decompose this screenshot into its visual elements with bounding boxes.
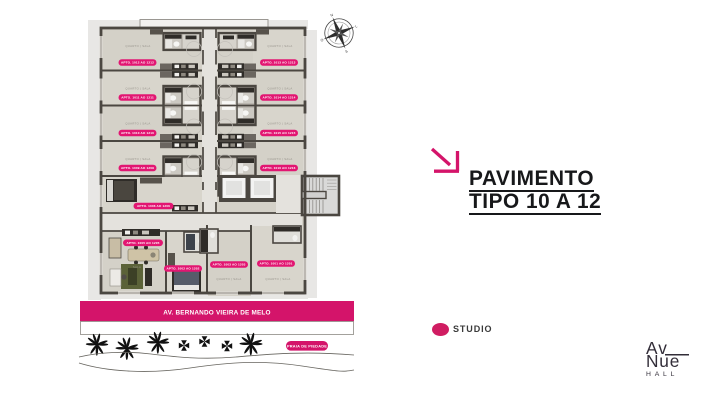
svg-text:QUARTO | SALA: QUARTO | SALA — [267, 44, 292, 48]
svg-text:APTO. 1009 AO 1209: APTO. 1009 AO 1209 — [121, 166, 154, 170]
svg-text:AV. BERNANDO VIEIRA DE MELO: AV. BERNANDO VIEIRA DE MELO — [163, 310, 270, 317]
svg-text:APTO. 1010 AO 1210: APTO. 1010 AO 1210 — [121, 131, 154, 135]
svg-text:QUARTO | SALA: QUARTO | SALA — [267, 87, 292, 91]
svg-text:APTO. 1001 AO 1201: APTO. 1001 AO 1201 — [260, 262, 293, 266]
svg-text:QUARTO | SALA: QUARTO | SALA — [125, 157, 150, 161]
svg-text:QUARTO | SALA: QUARTO | SALA — [265, 277, 290, 281]
svg-text:APTO. 1013 AO 1213: APTO. 1013 AO 1213 — [263, 61, 296, 65]
svg-text:APTO. 1015 AO 1215: APTO. 1015 AO 1215 — [263, 131, 296, 135]
svg-text:SALA: SALA — [133, 265, 141, 269]
svg-text:APTO. 1012 AO 1212: APTO. 1012 AO 1212 — [121, 61, 154, 65]
svg-text:APTO. 1005 AO 1205: APTO. 1005 AO 1205 — [127, 241, 160, 245]
svg-text:QUARTO | SALA: QUARTO | SALA — [125, 87, 150, 91]
svg-text:QUARTO | SALA: QUARTO | SALA — [125, 122, 150, 126]
svg-text:PRAIA DE PIEDADE: PRAIA DE PIEDADE — [287, 344, 327, 349]
svg-text:QUARTO | SALA: QUARTO | SALA — [125, 44, 150, 48]
svg-text:APTO. 1002 AO 1202: APTO. 1002 AO 1202 — [167, 267, 200, 271]
svg-text:APTO. 1016 AO 1216: APTO. 1016 AO 1216 — [263, 166, 296, 170]
svg-text:QUARTO | SALA: QUARTO | SALA — [267, 122, 292, 126]
svg-text:APTO. 1003 AO 1203: APTO. 1003 AO 1203 — [213, 263, 246, 267]
svg-text:APTO. 1011 AO 1211: APTO. 1011 AO 1211 — [121, 96, 154, 100]
svg-text:QUARTO | SALA: QUARTO | SALA — [267, 157, 292, 161]
svg-text:APTO. 1006 AO 1206: APTO. 1006 AO 1206 — [137, 204, 170, 208]
svg-text:APTO. 1014 AO 1214: APTO. 1014 AO 1214 — [263, 96, 296, 100]
svg-text:QUARTO | SALA: QUARTO | SALA — [216, 277, 241, 281]
